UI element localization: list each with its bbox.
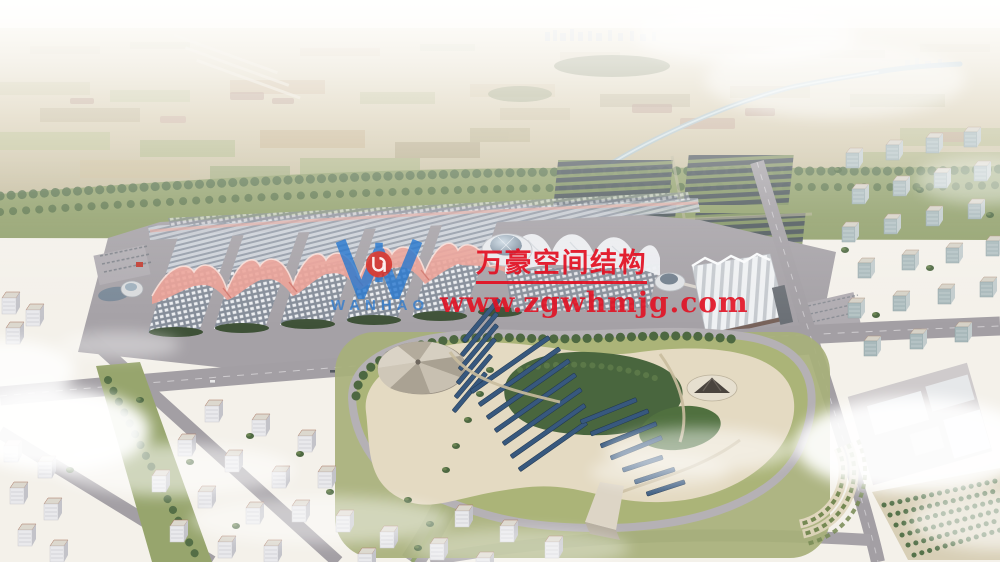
big-cone-tent: [378, 341, 466, 394]
atmospheric-haze: [0, 0, 1000, 330]
aerial-rendering-canvas: WANHAO 万豪空间结构 www.zgwhmjg.com: [0, 0, 1000, 562]
small-cone-structure: [687, 375, 737, 401]
